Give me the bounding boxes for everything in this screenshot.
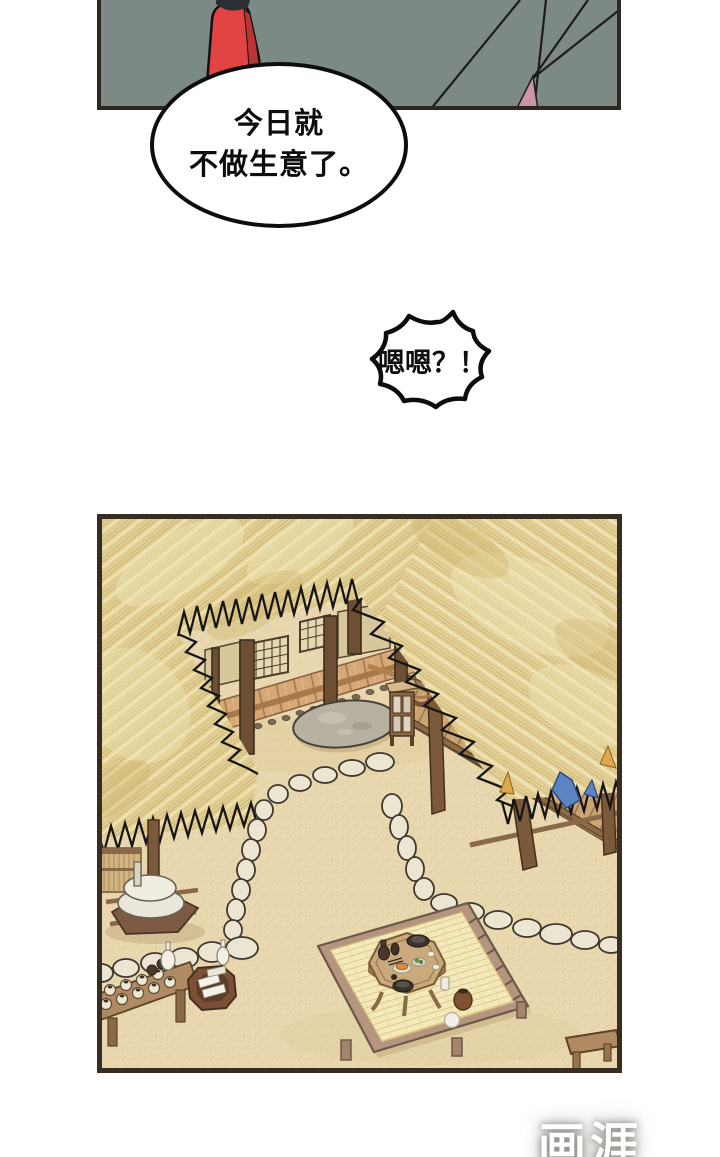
speech-line-2: 不做生意了。 (189, 145, 369, 186)
platform-leg (452, 1038, 462, 1056)
speech-bubble-spiky: 嗯嗯？！ (364, 306, 500, 414)
speech-bubble-oval: 今日就 不做生意了。 (150, 62, 408, 228)
dark-cup (147, 965, 157, 975)
spiky-bubble-text: 嗯嗯？！ (364, 306, 500, 414)
courtyard-art (97, 514, 622, 1073)
speech-line-1: 今日就 (234, 104, 324, 145)
paper-bucket (188, 966, 236, 1010)
watermark: 画涯 (538, 1106, 642, 1157)
comic-page: 今日就 不做生意了。 嗯嗯？！ (0, 0, 720, 1157)
lantern-stand (386, 679, 418, 746)
platform-leg (517, 1002, 526, 1018)
table-leg (404, 996, 406, 1016)
platform-leg (341, 1040, 351, 1060)
food-plate (396, 963, 408, 969)
comic-panel-courtyard (97, 514, 622, 1073)
white-bowl (445, 1013, 460, 1028)
